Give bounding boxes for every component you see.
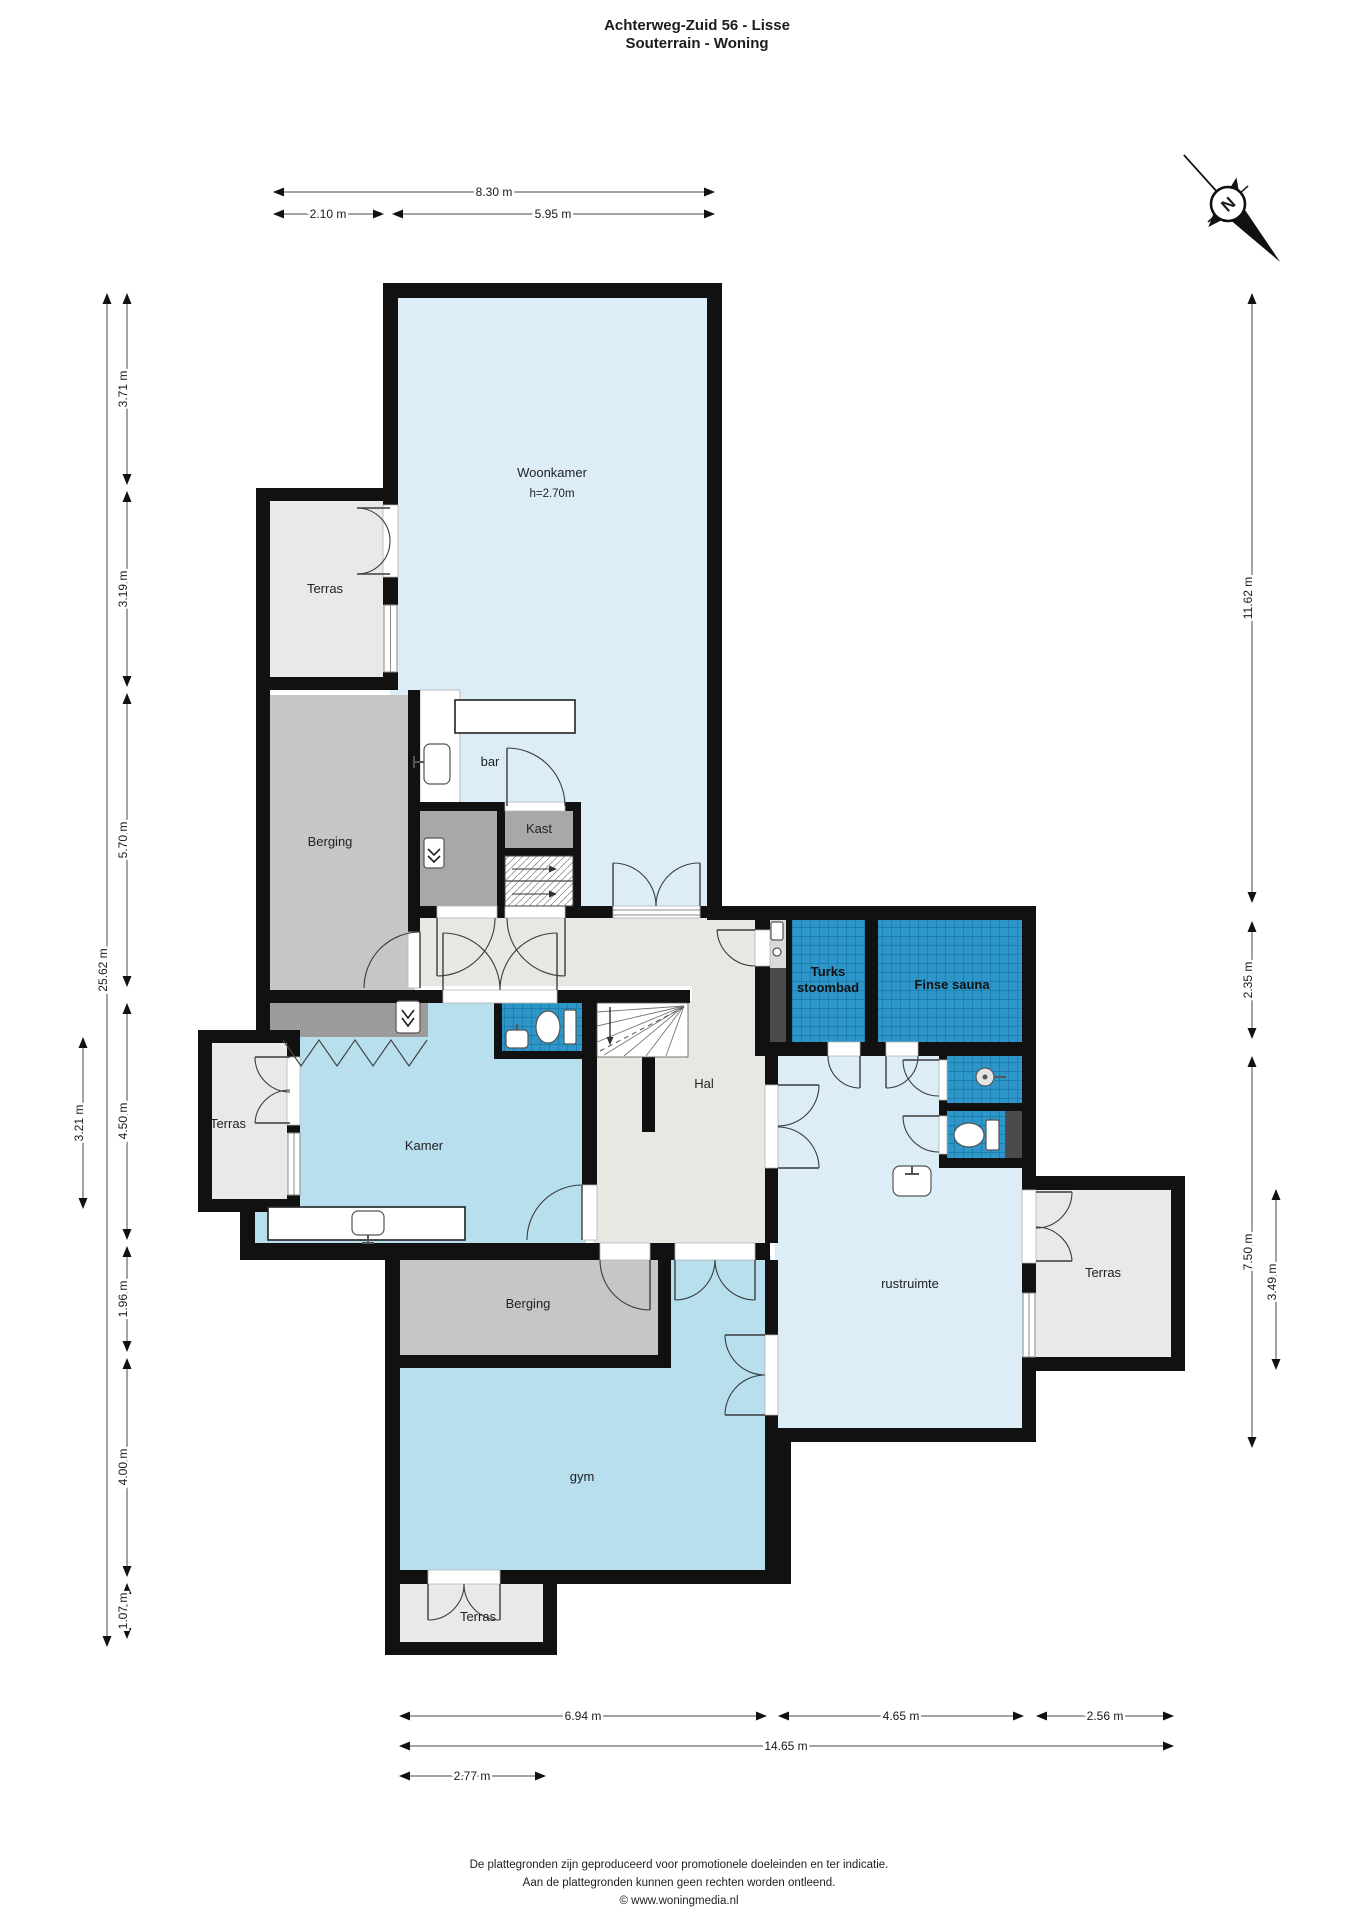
dim-bottom-3: 2.56 m bbox=[1037, 1709, 1173, 1723]
label-finse-sauna: Finse sauna bbox=[914, 977, 990, 992]
winder-staircase bbox=[597, 1003, 688, 1057]
dim-left-2: 3.19 m bbox=[116, 492, 130, 686]
dim-left-4: 4.50 m bbox=[116, 1004, 130, 1239]
svg-text:6.94 m: 6.94 m bbox=[565, 1709, 602, 1723]
window-terras-right bbox=[1023, 1293, 1035, 1357]
toilet-dark-strip bbox=[1005, 1109, 1022, 1160]
floorplan-page: Achterweg-Zuid 56 - Lisse Souterrain - W… bbox=[0, 0, 1358, 1920]
label-terras-right: Terras bbox=[1085, 1265, 1122, 1280]
floorplan-canvas: Achterweg-Zuid 56 - Lisse Souterrain - W… bbox=[0, 0, 1358, 1920]
svg-text:11.62 m: 11.62 m bbox=[1241, 577, 1255, 619]
footer-line2: Aan de plattegronden kunnen geen rechten… bbox=[523, 1877, 836, 1889]
label-berging-top: Berging bbox=[308, 834, 353, 849]
bar-counter bbox=[455, 700, 575, 733]
label-woonkamer-height: h=2.70m bbox=[529, 488, 574, 500]
label-kast: Kast bbox=[526, 821, 552, 836]
window-woonkamer-terras bbox=[384, 605, 397, 672]
footer: De plattegronden zijn geproduceerd voor … bbox=[470, 1859, 889, 1907]
svg-text:8.30 m: 8.30 m bbox=[476, 185, 513, 199]
dim-left-total: 25.62 m bbox=[96, 294, 110, 1646]
wall-sink-icon bbox=[893, 1166, 931, 1196]
dim-left-terras: 3.21 m bbox=[72, 1038, 86, 1208]
svg-text:4.00 m: 4.00 m bbox=[116, 1449, 130, 1486]
label-berging-low: Berging bbox=[506, 1296, 551, 1311]
svg-text:14.65 m: 14.65 m bbox=[764, 1739, 807, 1753]
label-terras-top: Terras bbox=[307, 581, 344, 596]
dim-left-5: 1.96 m bbox=[116, 1247, 130, 1351]
dim-bottom-1: 6.94 m bbox=[400, 1709, 766, 1723]
label-hal: Hal bbox=[694, 1076, 714, 1091]
label-gym: gym bbox=[570, 1469, 595, 1484]
label-turks-line2: stoombad bbox=[797, 980, 859, 995]
dim-right-1: 11.62 m bbox=[1241, 294, 1255, 902]
dim-bottom-terras: 2.77 m bbox=[400, 1769, 545, 1783]
svg-text:4.50 m: 4.50 m bbox=[116, 1103, 130, 1140]
dim-left-3: 5.70 m bbox=[116, 694, 130, 986]
dim-top-total: 8.30 m bbox=[274, 185, 714, 199]
svg-text:5.70 m: 5.70 m bbox=[116, 822, 130, 859]
label-rustruimte: rustruimte bbox=[881, 1276, 939, 1291]
svg-text:3.21 m: 3.21 m bbox=[72, 1105, 86, 1142]
svg-text:3.71 m: 3.71 m bbox=[116, 371, 130, 408]
niche-fixture-icons bbox=[771, 922, 783, 956]
title-line1: Achterweg-Zuid 56 - Lisse bbox=[604, 17, 790, 34]
dim-bottom-total: 14.65 m bbox=[400, 1739, 1173, 1753]
straight-staircase bbox=[505, 856, 573, 906]
footer-line3: © www.woningmedia.nl bbox=[619, 1895, 738, 1907]
label-terras-bottom: Terras bbox=[460, 1609, 497, 1624]
bath-toilet-icon bbox=[536, 1010, 576, 1044]
svg-text:2.77 m: 2.77 m bbox=[454, 1769, 491, 1783]
svg-text:7.50 m: 7.50 m bbox=[1241, 1234, 1255, 1271]
svg-text:2.10 m: 2.10 m bbox=[310, 207, 347, 221]
dim-bottom-2: 4.65 m bbox=[779, 1709, 1023, 1723]
page-title: Achterweg-Zuid 56 - Lisse Souterrain - W… bbox=[604, 17, 790, 52]
svg-text:3.49 m: 3.49 m bbox=[1265, 1264, 1279, 1301]
svg-text:2.35 m: 2.35 m bbox=[1241, 962, 1255, 999]
label-bar: bar bbox=[481, 754, 500, 769]
svg-text:3.19 m: 3.19 m bbox=[116, 571, 130, 608]
footer-line1: De plattegronden zijn geproduceerd voor … bbox=[470, 1859, 889, 1871]
dim-top-right: 5.95 m bbox=[393, 207, 714, 221]
svg-text:1.96 m: 1.96 m bbox=[116, 1281, 130, 1318]
svg-text:25.62 m: 25.62 m bbox=[96, 948, 110, 991]
svg-text:2.56 m: 2.56 m bbox=[1087, 1709, 1124, 1723]
title-line2: Souterrain - Woning bbox=[625, 35, 768, 52]
svg-text:1.07 m: 1.07 m bbox=[116, 1593, 130, 1630]
label-turks-line1: Turks bbox=[811, 964, 845, 979]
dim-right-3: 7.50 m bbox=[1241, 1057, 1255, 1447]
dim-left-1: 3.71 m bbox=[116, 294, 130, 484]
label-kamer: Kamer bbox=[405, 1138, 444, 1153]
dim-right-terras: 3.49 m bbox=[1265, 1190, 1279, 1369]
svg-text:4.65 m: 4.65 m bbox=[883, 1709, 920, 1723]
label-woonkamer: Woonkamer bbox=[517, 465, 588, 480]
dim-top-left: 2.10 m bbox=[274, 207, 383, 221]
compass-rose: N bbox=[1162, 137, 1301, 282]
dim-right-2: 2.35 m bbox=[1241, 922, 1255, 1038]
boiler-icon bbox=[396, 1001, 420, 1033]
svg-text:5.95 m: 5.95 m bbox=[535, 207, 572, 221]
toilet-icon bbox=[954, 1120, 999, 1150]
window-terras-left bbox=[288, 1133, 300, 1195]
dim-left-7: 1.07 m bbox=[116, 1584, 130, 1638]
dim-left-6: 4.00 m bbox=[116, 1359, 130, 1576]
label-terras-left: Terras bbox=[210, 1116, 247, 1131]
storage-appliance-icon bbox=[424, 838, 444, 868]
